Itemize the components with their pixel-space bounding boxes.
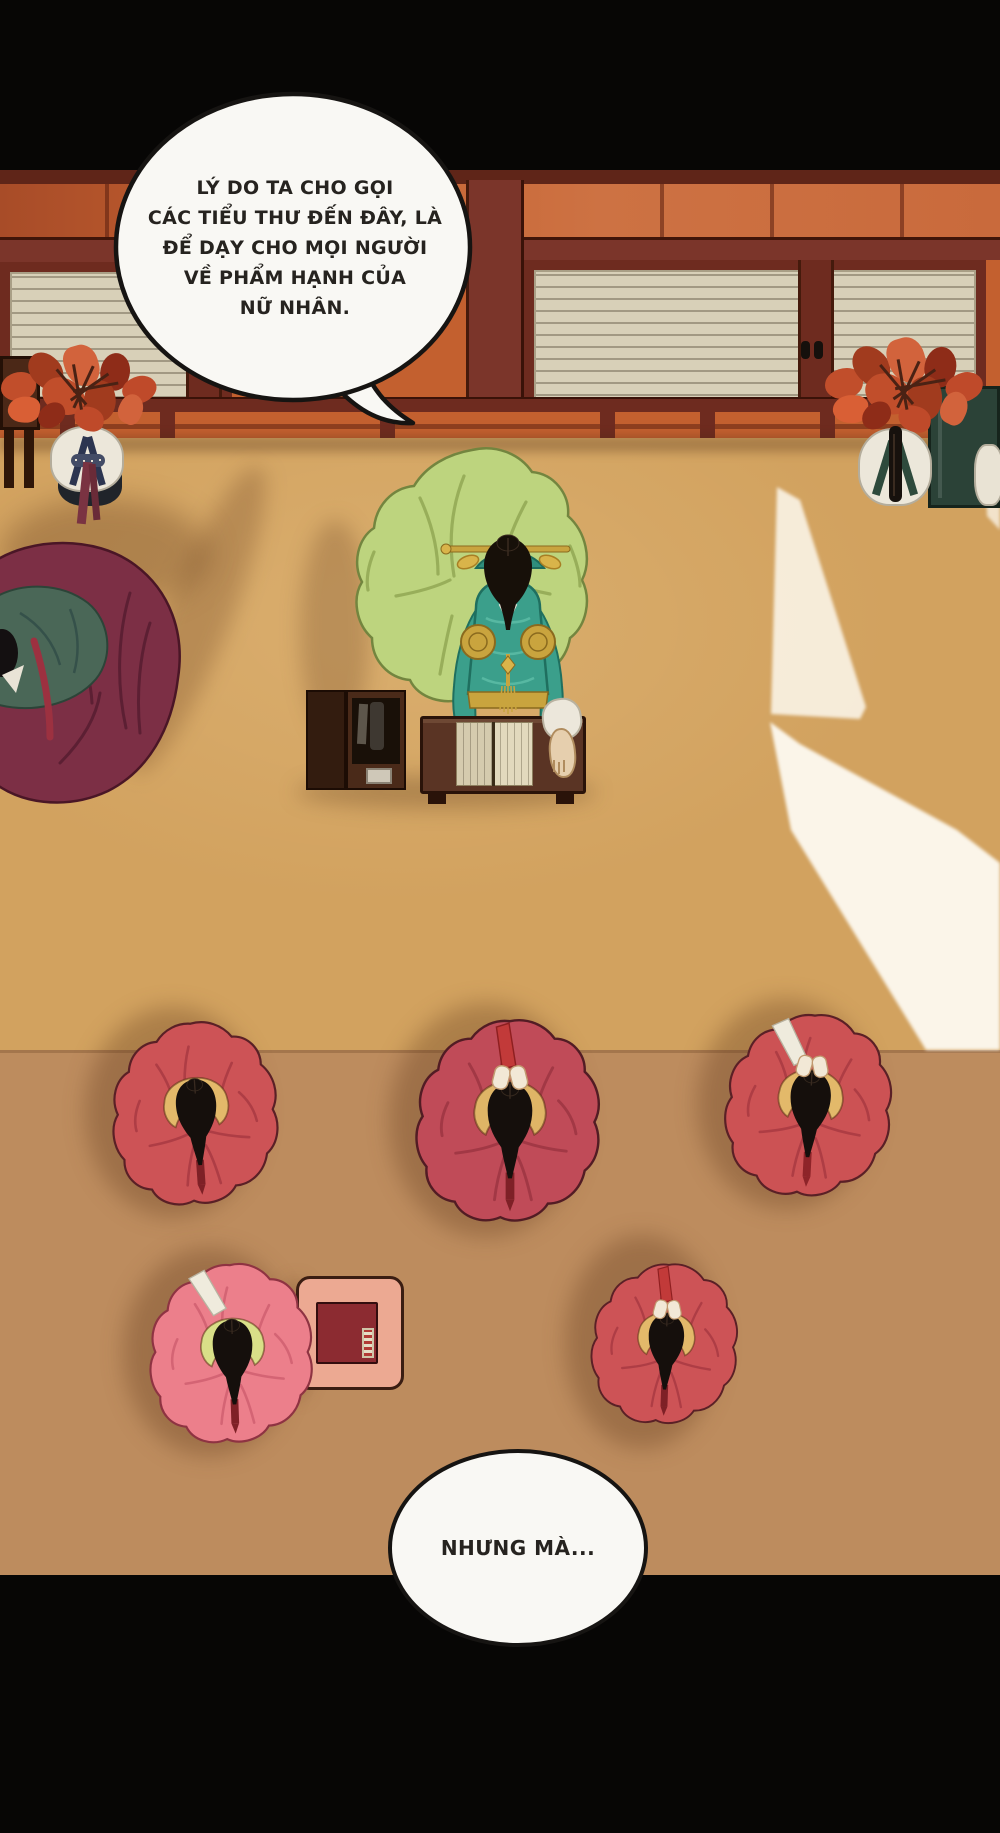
binyeo-end: [441, 544, 451, 554]
book-page-left: [456, 722, 493, 786]
book-title-label: [362, 1328, 374, 1358]
desk-leg: [428, 792, 446, 804]
student-figure: [413, 1009, 607, 1243]
flower-headpiece-right: [832, 350, 982, 442]
comic-page: LÝ DO TA CHO GỌI CÁC TIỂU THƯ ĐẾN ĐÂY, L…: [0, 0, 1000, 1833]
book-page-right: [493, 722, 533, 786]
gold-emblem: [461, 625, 495, 659]
finger-line: [563, 760, 565, 772]
speech-line: VỀ PHẨM HẠNH CỦA: [184, 263, 406, 293]
wall-seam: [900, 184, 904, 237]
finger-line: [558, 762, 560, 774]
speech-bubble-bottom-text: NHƯNG MÀ...: [400, 1520, 636, 1576]
student-figure: [143, 1251, 322, 1465]
chest-lid: [306, 690, 346, 790]
door-handle-icon: [814, 341, 823, 359]
book-spine: [492, 722, 495, 786]
seated-student: [716, 1000, 905, 1219]
stationery-chest: [306, 690, 406, 790]
wall-seam: [660, 184, 664, 237]
paper-box: [366, 768, 392, 784]
attendant-left-figure: [0, 533, 196, 823]
desk-leg: [556, 792, 574, 804]
wall-seam: [770, 184, 774, 237]
seated-student: [585, 1238, 746, 1457]
door-handle-icon: [801, 341, 810, 359]
speech-bubble-top-text: LÝ DO TA CHO GỌI CÁC TIỂU THƯ ĐẾN ĐÂY, L…: [140, 168, 450, 328]
speech-line: LÝ DO TA CHO GỌI: [196, 173, 393, 203]
student-figure: [102, 1007, 292, 1229]
speech-line: NỮ NHÂN.: [240, 293, 350, 323]
gold-emblem: [521, 625, 555, 659]
flower-blob: [7, 395, 41, 423]
speech-line: CÁC TIỂU THƯ ĐẾN ĐÂY, LÀ: [148, 203, 442, 233]
seated-student: [102, 1007, 292, 1229]
seated-student: [143, 1251, 322, 1465]
hair-part: [811, 1072, 812, 1086]
student-figure: [716, 1000, 905, 1219]
speech-line: ĐỂ DẠY CHO MỌI NGƯỜI: [163, 233, 428, 263]
seated-student: [413, 1009, 607, 1243]
sunbeam-middle: [771, 487, 866, 719]
speech-line: NHƯNG MÀ...: [441, 1536, 595, 1560]
finger-line: [553, 760, 555, 772]
inkstone-icon: [370, 702, 384, 750]
student-figure: [585, 1238, 746, 1457]
bench-cushion: [974, 444, 1000, 506]
braid-strand: [893, 434, 895, 496]
attendant-svg: [0, 533, 196, 823]
